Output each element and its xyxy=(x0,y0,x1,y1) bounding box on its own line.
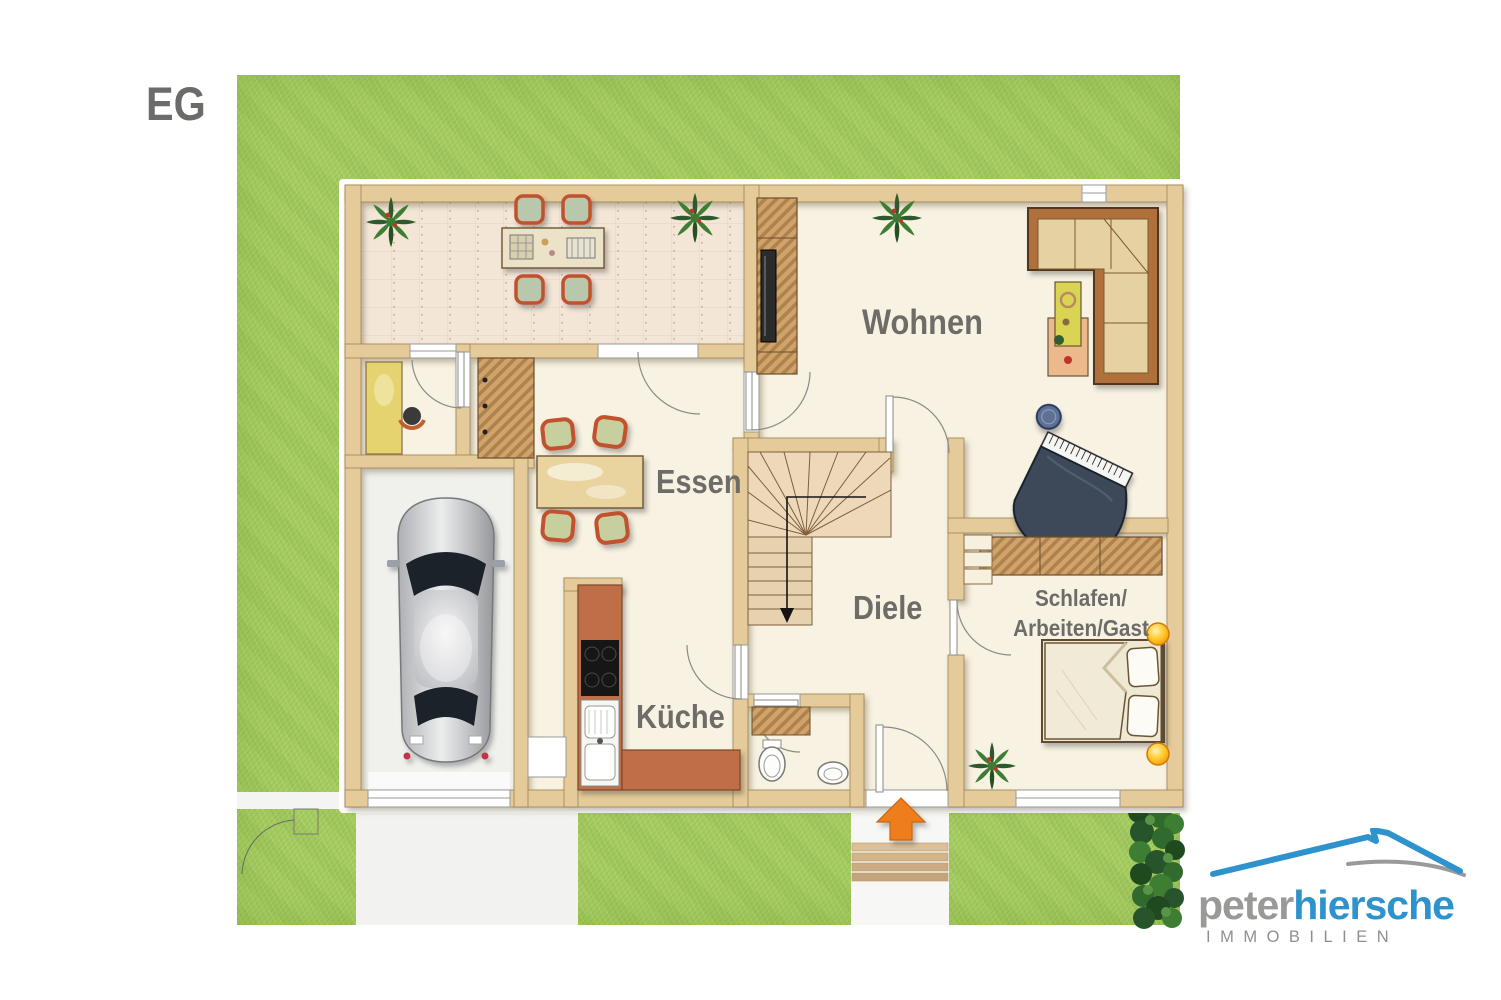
room-label-schlafen-line2: Arbeiten/Gast xyxy=(1004,613,1159,643)
tv xyxy=(761,250,776,342)
floor-plan-page: EG Wohnen Essen Diele Küche Schlafen/ Ar… xyxy=(0,0,1501,1000)
toilet xyxy=(759,747,785,781)
plant-icon xyxy=(968,742,1016,790)
dining-table xyxy=(537,456,643,508)
utility-box xyxy=(528,737,566,777)
room-label-essen: Essen xyxy=(656,463,742,501)
wc-cabinet xyxy=(752,707,810,735)
double-bed xyxy=(1042,640,1164,742)
lamp-icon xyxy=(1147,743,1169,765)
bedroom-wardrobe xyxy=(980,537,1162,575)
garage-door-landing xyxy=(368,772,510,790)
plant-icon xyxy=(872,193,922,243)
hall-shelf xyxy=(964,535,992,584)
brand-subtitle: IMMOBILIEN xyxy=(1198,928,1478,947)
brand-logo: peterhiersche IMMOBILIEN xyxy=(1198,828,1478,947)
room-label-schlafen: Schlafen/ Arbeiten/Gast xyxy=(1004,583,1159,643)
room-label-kueche: Küche xyxy=(636,698,725,736)
terrace xyxy=(358,198,748,346)
brand-name-first: peter xyxy=(1198,882,1293,928)
pillow xyxy=(1127,647,1160,687)
office-chair xyxy=(403,407,421,425)
car xyxy=(387,498,505,762)
floor-title: EG xyxy=(146,76,206,131)
room-label-wohnen: Wohnen xyxy=(862,303,983,343)
terrace-door-opening xyxy=(598,344,698,358)
garden-gate xyxy=(242,809,318,874)
room-label-diele: Diele xyxy=(853,589,922,627)
driveway xyxy=(356,795,578,925)
plant-icon xyxy=(670,193,720,243)
room-label-schlafen-line1: Schlafen/ xyxy=(1004,583,1159,613)
plant-icon xyxy=(366,197,416,247)
wash-basin xyxy=(818,762,848,784)
pillow xyxy=(1127,695,1159,737)
hedge xyxy=(1128,801,1185,929)
tv-cabinet xyxy=(757,198,797,374)
brand-name: peterhiersche xyxy=(1198,885,1478,925)
brand-name-second: hiersche xyxy=(1293,882,1454,928)
roof-logo-icon xyxy=(1198,828,1470,880)
